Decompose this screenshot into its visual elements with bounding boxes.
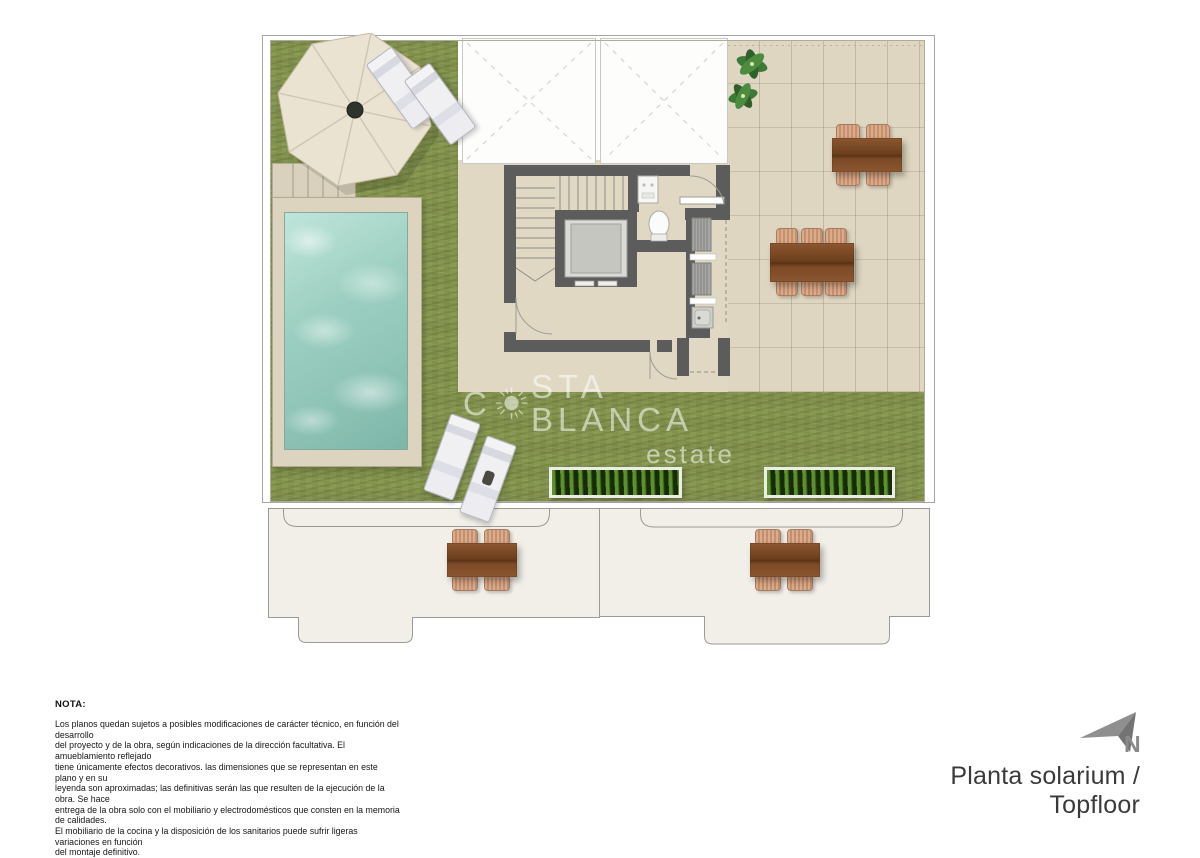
dining-table-icon: [748, 527, 824, 591]
dining-table-icon: [768, 226, 856, 296]
planter-icon: [764, 467, 895, 498]
floor-plan-page: { "colors": { "grass": "#8b9a54", "pool_…: [0, 0, 1200, 800]
lower-terrace-left: [269, 509, 600, 643]
toilet-icon: [649, 211, 669, 237]
dining-table-icon: [830, 122, 904, 186]
stair-core: [495, 155, 735, 385]
notes-heading: NOTA:: [55, 699, 400, 710]
dining-table-icon: [445, 527, 521, 591]
pool-icon: [284, 212, 408, 450]
leaf-rosette: [735, 48, 769, 80]
towel: [481, 470, 495, 487]
elevator-icon: [555, 210, 637, 287]
awning-outline-left: [284, 508, 550, 527]
planter-icon: [549, 467, 682, 498]
leaf-rosette: [728, 81, 759, 111]
awning-outline-right: [641, 509, 903, 527]
page-title: Planta solarium / Topfloor: [860, 762, 1140, 820]
umbrella-hub: [347, 102, 363, 118]
skylight-panel-right: [600, 38, 728, 164]
notes-block: NOTA: Los planos quedan sujetos a posibl…: [55, 699, 400, 858]
notes-body: Los planos quedan sujetos a posibles mod…: [55, 719, 400, 858]
skylight-panel-left: [462, 38, 596, 164]
north-label: N: [1124, 731, 1141, 758]
plant-icon: [728, 42, 786, 122]
skylight-icon: [601, 39, 727, 163]
cistern-cabinet: [638, 176, 658, 203]
skylight-icon: [463, 39, 595, 163]
wc-area: [638, 176, 669, 241]
